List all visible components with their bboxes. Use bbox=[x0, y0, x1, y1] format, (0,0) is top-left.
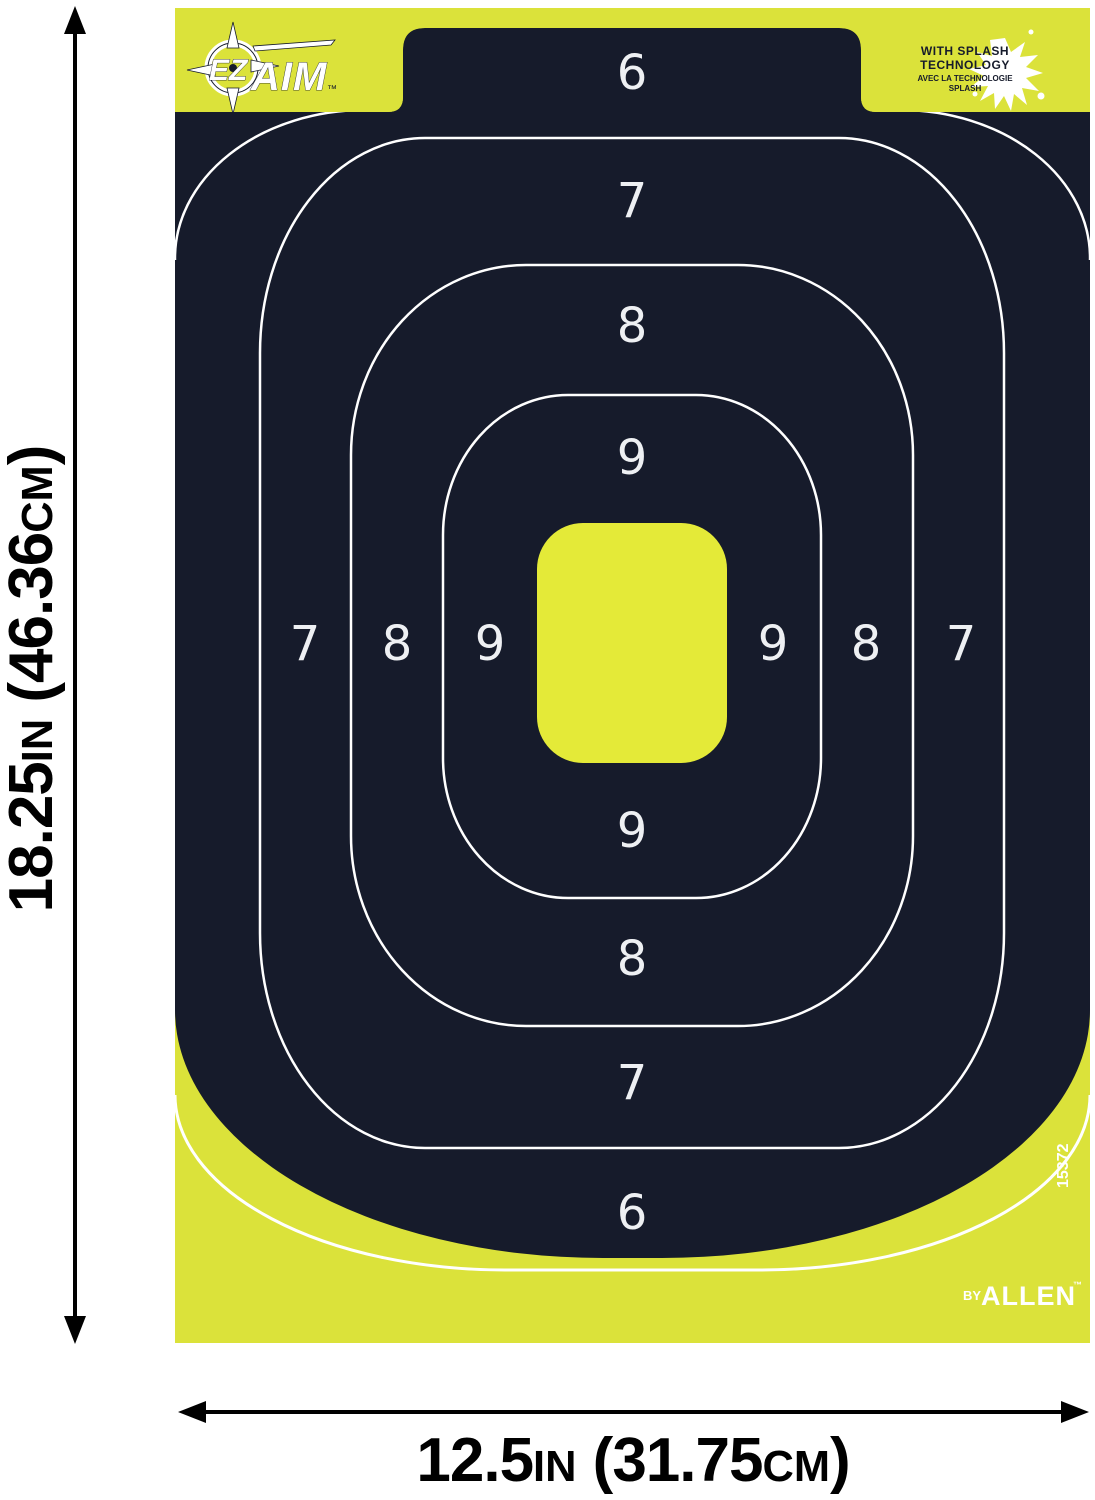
splash-badge-line2: TECHNOLOGY bbox=[920, 58, 1010, 72]
splash-badge-line3: AVEC LA TECHNOLOGIE bbox=[917, 74, 1013, 83]
ring-number: 9 bbox=[758, 616, 789, 672]
splash-badge-line4: SPLASH bbox=[949, 84, 982, 93]
height-close: ) bbox=[0, 446, 66, 466]
logo-aim-text: AIM bbox=[250, 55, 328, 99]
sku-label: 15372 bbox=[1055, 1143, 1072, 1188]
width-paren-unit: CM bbox=[762, 1443, 829, 1491]
width-unit: IN bbox=[533, 1443, 576, 1491]
arrowhead-left bbox=[178, 1401, 206, 1423]
arrowhead-right bbox=[1061, 1401, 1089, 1423]
ring-number: 8 bbox=[851, 616, 882, 672]
ring-number: 6 bbox=[617, 1185, 648, 1241]
logo-tm: ™ bbox=[327, 84, 337, 95]
ring-number: 8 bbox=[617, 931, 648, 987]
height-dimension-label: 18.25IN (46.36CM) bbox=[0, 359, 69, 999]
allen-logo: BY ALLEN ™ bbox=[963, 1280, 1082, 1311]
width-value: 12.5 bbox=[416, 1426, 533, 1495]
ring-number: 9 bbox=[475, 616, 506, 672]
ring-number: 8 bbox=[382, 616, 413, 672]
ring-number: 7 bbox=[617, 1055, 648, 1111]
byline-by: BY bbox=[963, 1288, 981, 1303]
width-dimension-arrow bbox=[178, 1401, 1089, 1423]
height-paren-unit: CM bbox=[14, 465, 62, 532]
ring-number: 6 bbox=[617, 45, 648, 101]
target-card: 6 7 8 9 9 8 7 6 7 8 9 9 8 7 EZ bbox=[175, 8, 1090, 1343]
center-bullseye bbox=[537, 523, 727, 763]
ring-number: 9 bbox=[617, 803, 648, 859]
ring-number: 7 bbox=[946, 616, 977, 672]
byline-name: ALLEN bbox=[981, 1281, 1076, 1311]
byline-tm: ™ bbox=[1073, 1280, 1082, 1290]
arrowhead-up bbox=[64, 6, 86, 34]
height-value: 18.25 bbox=[0, 762, 66, 912]
splash-droplet bbox=[1029, 30, 1034, 35]
ring-number: 8 bbox=[617, 298, 648, 354]
ring-number: 7 bbox=[290, 616, 321, 672]
ring-number: 9 bbox=[617, 430, 648, 486]
height-paren-value: (46.36 bbox=[0, 533, 66, 719]
width-close: ) bbox=[830, 1426, 850, 1495]
logo-ez-text: EZ bbox=[209, 54, 249, 87]
width-dimension-label: 12.5IN (31.75CM) bbox=[233, 1424, 1033, 1500]
product-dimension-diagram: 6 7 8 9 9 8 7 6 7 8 9 9 8 7 EZ bbox=[0, 0, 1095, 1500]
arrowhead-down bbox=[64, 1316, 86, 1344]
height-unit: IN bbox=[14, 719, 62, 762]
ring-number: 7 bbox=[617, 173, 648, 229]
splash-droplet bbox=[1038, 93, 1045, 100]
width-paren-value: (31.75 bbox=[576, 1426, 762, 1495]
splash-badge-line1: WITH SPLASH bbox=[921, 44, 1009, 58]
